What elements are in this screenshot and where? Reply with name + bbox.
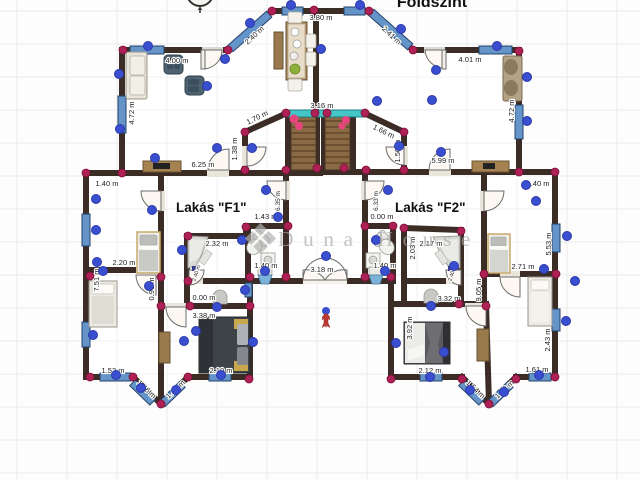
- svg-text:9.05 m: 9.05 m: [474, 279, 483, 302]
- svg-text:Lakás "F1": Lakás "F1": [176, 200, 247, 215]
- svg-text:2.71 m: 2.71 m: [512, 262, 535, 271]
- svg-text:6.33 m: 6.33 m: [373, 191, 380, 211]
- svg-text:4.72 m: 4.72 m: [507, 100, 516, 123]
- svg-text:2.43 m: 2.43 m: [543, 329, 552, 352]
- svg-text:Lakás "F2": Lakás "F2": [395, 200, 466, 215]
- svg-text:4.00 m: 4.00 m: [166, 56, 189, 65]
- svg-text:1.38 m: 1.38 m: [230, 138, 239, 161]
- svg-text:1.40 m: 1.40 m: [96, 179, 119, 188]
- svg-text:5.99 m: 5.99 m: [432, 156, 455, 165]
- svg-text:0.00 m: 0.00 m: [371, 212, 394, 221]
- svg-text:2.20 m: 2.20 m: [113, 258, 136, 267]
- svg-text:2.32 m: 2.32 m: [206, 239, 229, 248]
- svg-text:3.80 m: 3.80 m: [310, 13, 333, 22]
- svg-text:0.00 m: 0.00 m: [193, 293, 216, 302]
- svg-text:6.25 m: 6.25 m: [192, 160, 215, 169]
- svg-text:Duna House: Duna House: [278, 227, 480, 251]
- svg-text:3.38 m: 3.38 m: [193, 311, 216, 320]
- svg-text:6.35 m: 6.35 m: [275, 191, 282, 211]
- svg-text:3.18 m: 3.18 m: [311, 265, 334, 274]
- svg-text:4.01 m: 4.01 m: [459, 55, 482, 64]
- svg-text:3.92 m: 3.92 m: [405, 317, 414, 340]
- svg-text:3.16 m: 3.16 m: [311, 101, 334, 110]
- svg-text:4.72 m: 4.72 m: [127, 102, 136, 125]
- svg-text:5.53 m: 5.53 m: [544, 233, 553, 256]
- svg-text:Földszint: Földszint: [397, 0, 468, 11]
